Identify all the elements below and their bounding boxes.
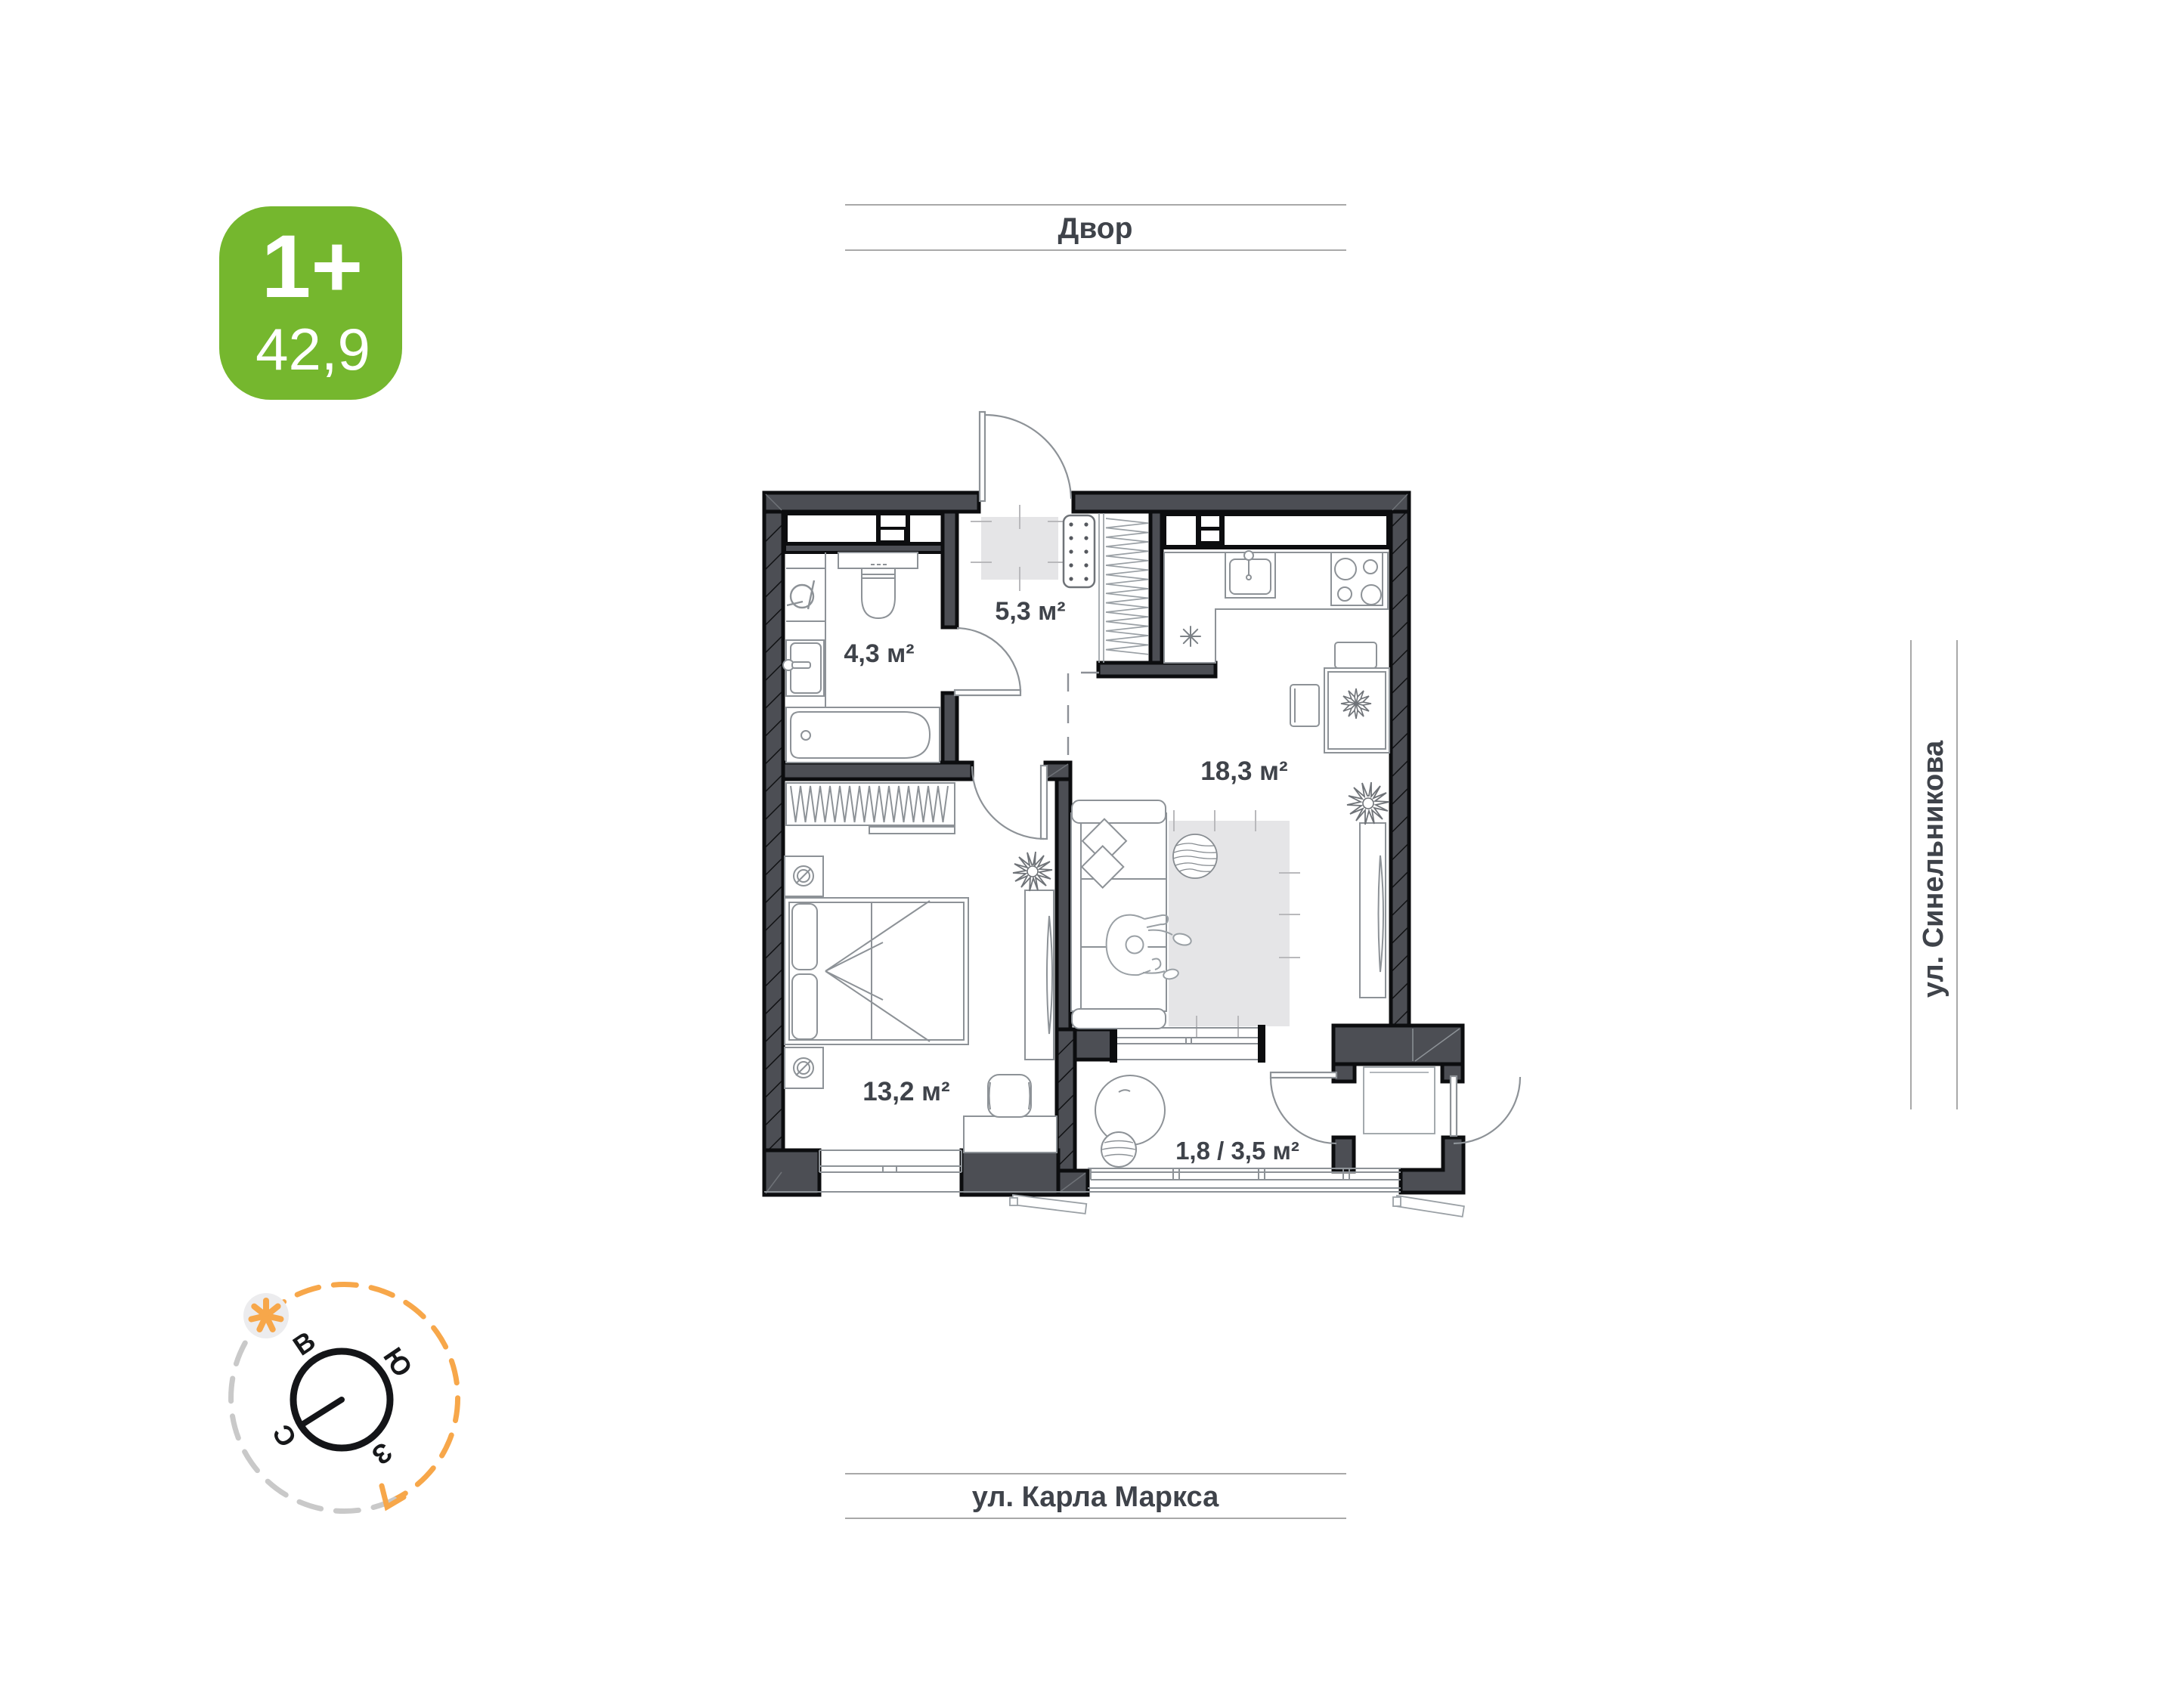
svg-text:ул. Карла Маркса: ул. Карла Маркса (972, 1481, 1219, 1513)
svg-text:ул. Синельникова: ул. Синельникова (1918, 740, 1949, 998)
svg-text:1,8 / 3,5 м²: 1,8 / 3,5 м² (1175, 1137, 1299, 1165)
svg-text:13,2 м²: 13,2 м² (862, 1077, 949, 1106)
svg-text:Двор: Двор (1058, 212, 1133, 245)
svg-text:5,3 м²: 5,3 м² (995, 597, 1065, 626)
svg-text:4,3 м²: 4,3 м² (844, 639, 914, 668)
svg-text:18,3 м²: 18,3 м² (1200, 757, 1287, 786)
svg-text:1+: 1+ (262, 217, 364, 317)
svg-text:42,9: 42,9 (255, 316, 370, 382)
